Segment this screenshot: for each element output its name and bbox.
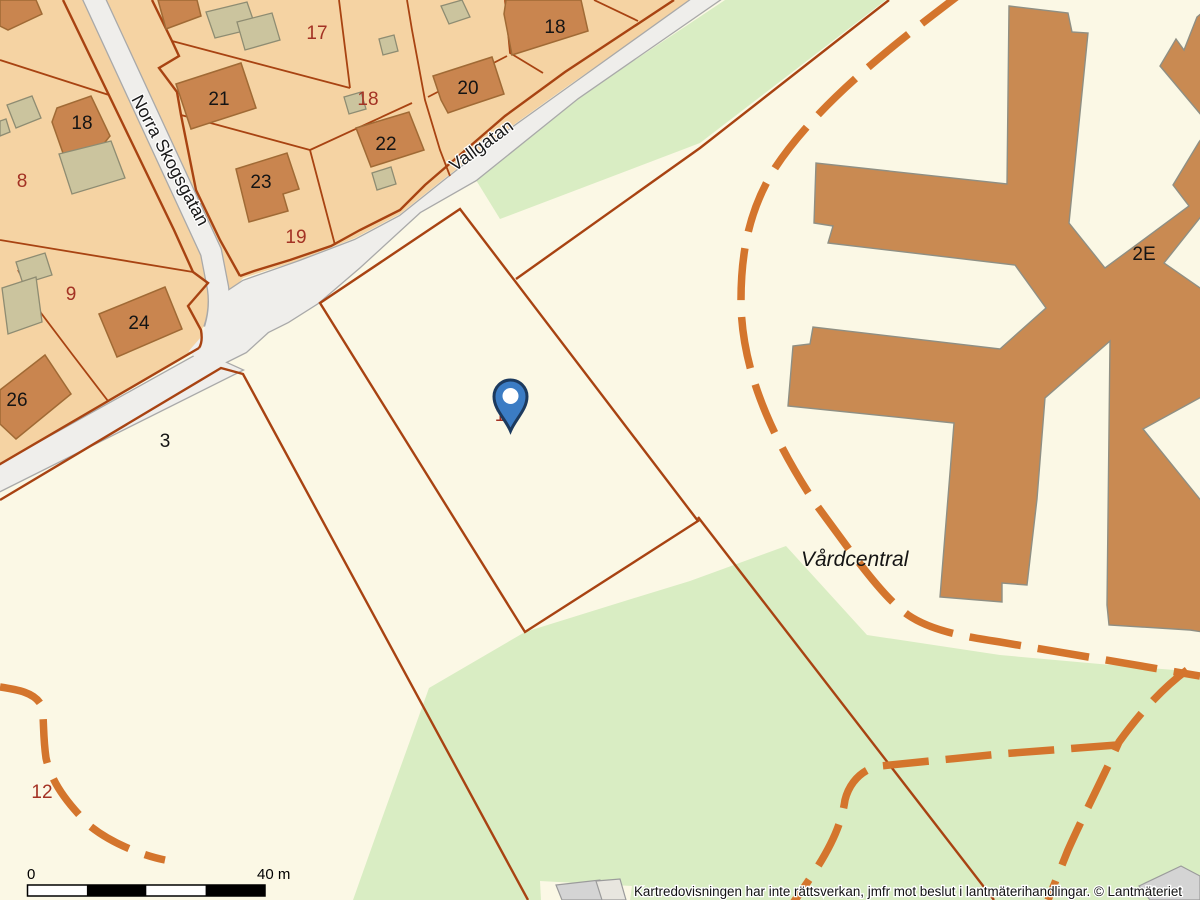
svg-text:17: 17 [306,23,327,44]
svg-text:18: 18 [71,113,92,134]
svg-text:12: 12 [31,782,52,803]
svg-text:23: 23 [250,172,271,193]
svg-text:8: 8 [17,171,28,192]
svg-text:18: 18 [544,17,565,38]
svg-text:Vårdcentral: Vårdcentral [801,548,910,571]
svg-text:24: 24 [128,313,150,334]
svg-text:20: 20 [457,78,478,99]
svg-text:22: 22 [375,134,396,155]
svg-text:2E: 2E [1132,244,1155,265]
svg-text:9: 9 [66,284,77,305]
svg-text:18: 18 [357,89,378,110]
svg-text:21: 21 [208,89,229,110]
svg-text:Kartredovisningen har inte rät: Kartredovisningen har inte rättsverkan, … [634,884,1182,899]
svg-text:3: 3 [160,431,171,452]
svg-text:19: 19 [285,227,306,248]
svg-text:0: 0 [27,866,35,883]
svg-text:40 m: 40 m [257,866,290,883]
svg-text:26: 26 [6,390,27,411]
